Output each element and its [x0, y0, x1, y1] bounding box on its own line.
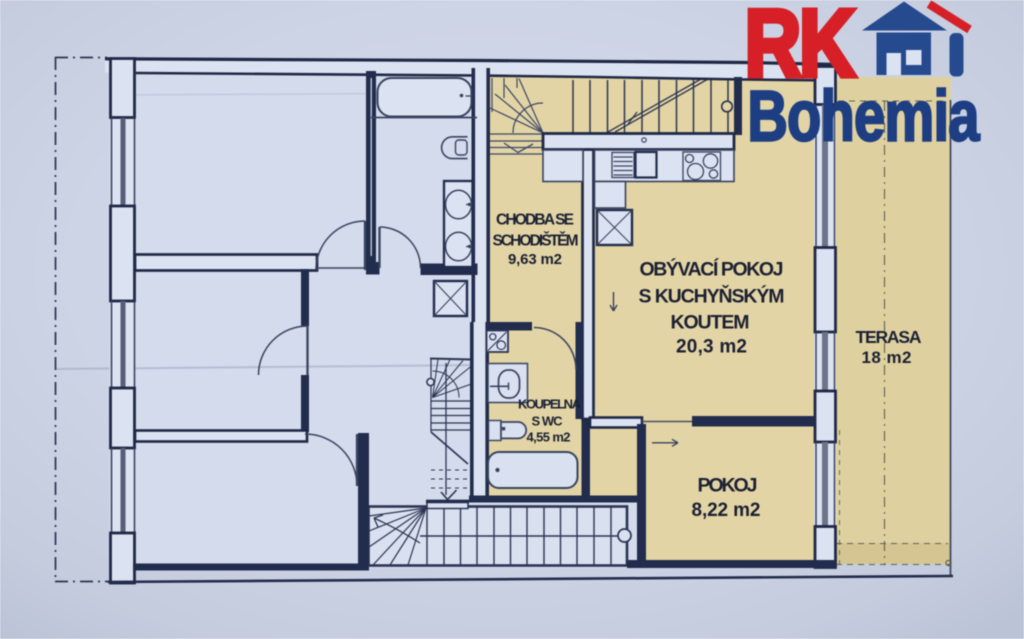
- svg-text:S WC: S WC: [532, 414, 564, 429]
- svg-text:SCHODIŠTĚM: SCHODIŠTĚM: [493, 232, 579, 250]
- svg-text:8,22 m2: 8,22 m2: [692, 500, 761, 521]
- svg-text:KOUPELNA: KOUPELNA: [518, 397, 582, 412]
- svg-text:9,63 m2: 9,63 m2: [508, 251, 562, 268]
- svg-text:20,3 m2: 20,3 m2: [676, 337, 747, 358]
- svg-text:CHODBA SE: CHODBA SE: [496, 212, 574, 229]
- svg-text:POKOJ: POKOJ: [698, 475, 758, 497]
- svg-text:S KUCHYŇSKÝM: S KUCHYŇSKÝM: [639, 284, 785, 308]
- svg-text:KOUTEM: KOUTEM: [671, 312, 750, 334]
- svg-text:4,55 m2: 4,55 m2: [527, 430, 571, 445]
- svg-text:OBÝVACÍ POKOJ: OBÝVACÍ POKOJ: [640, 257, 784, 281]
- svg-text:18 m2: 18 m2: [862, 348, 912, 367]
- svg-text:Bohemia: Bohemia: [747, 76, 979, 156]
- svg-text:TERASA: TERASA: [856, 327, 922, 347]
